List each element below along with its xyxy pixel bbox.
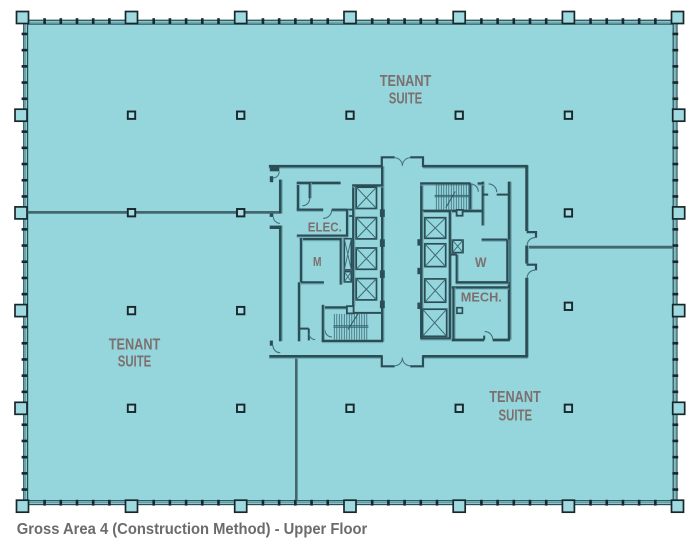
svg-text:MECH.: MECH. [461, 289, 502, 304]
svg-text:TENANT: TENANT [489, 389, 541, 406]
svg-text:SUITE: SUITE [118, 353, 152, 370]
svg-text:W: W [475, 255, 487, 270]
svg-text:Gross Area 4 (Construction Met: Gross Area 4 (Construction Method) - Upp… [17, 521, 368, 538]
svg-text:ELEC.: ELEC. [308, 221, 342, 235]
svg-text:SUITE: SUITE [499, 408, 533, 425]
svg-text:M: M [313, 254, 322, 269]
svg-text:TENANT: TENANT [109, 336, 161, 353]
svg-text:TENANT: TENANT [380, 73, 432, 90]
svg-text:SUITE: SUITE [389, 90, 423, 107]
